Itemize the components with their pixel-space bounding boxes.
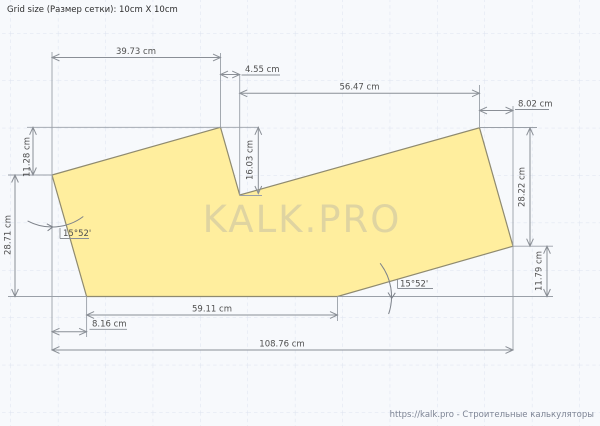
- grid-size-label: Grid size (Размер сетки): 10cm X 10cm: [7, 5, 178, 15]
- dim-right-drop-label: 11.79 cm: [535, 251, 545, 291]
- dim-total-width-label: 108.76 cm: [259, 340, 304, 350]
- dim-right-offset-label: 8.02 cm: [518, 100, 553, 110]
- angle-bottom-label: 15°52': [400, 280, 428, 290]
- dim-upper-right-width-label: 56.47 cm: [340, 83, 380, 93]
- dim-notch-depth-label: 16.03 cm: [246, 140, 256, 180]
- drawing-canvas: KALK.PRO: [0, 0, 600, 426]
- watermark: KALK.PRO: [203, 198, 402, 241]
- dim-bottom-width-label: 59.11 cm: [192, 305, 232, 315]
- dim-top-width-label: 39.73 cm: [116, 47, 156, 57]
- diagram-svg: KALK.PRO: [0, 0, 600, 426]
- dim-left-rise-label: 11.28 cm: [23, 137, 33, 177]
- dim-bottom-left-offset-label: 8.16 cm: [92, 320, 127, 330]
- dim-left-height-label: 28.71 cm: [4, 215, 14, 255]
- site-credit-link[interactable]: https://kalk.pro - Строительные калькуля…: [390, 410, 594, 420]
- angle-left-label: 15°52': [63, 229, 91, 239]
- dim-right-height-label: 28.22 cm: [518, 167, 528, 207]
- dim-notch-offset-label: 4.55 cm: [245, 65, 280, 75]
